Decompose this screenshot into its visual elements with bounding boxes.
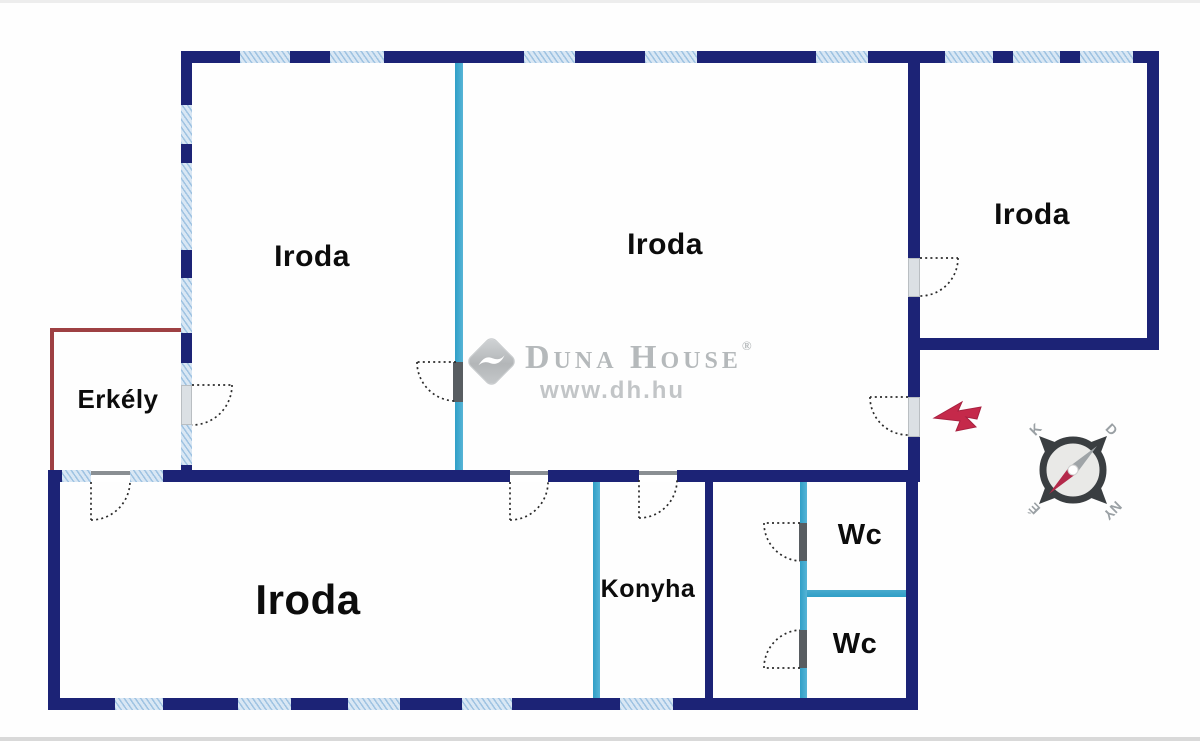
entrance-door-slab: [908, 397, 920, 437]
wall-segment: [908, 51, 920, 397]
bottom-edge-strip: [0, 737, 1200, 741]
room-label-wc-lower: Wc: [805, 628, 905, 661]
door-arc: [510, 482, 548, 520]
window: [181, 105, 192, 144]
window: [816, 51, 868, 63]
window: [645, 51, 697, 63]
dunahouse-brand-text: Duna House®: [525, 338, 752, 377]
door-slab: [908, 258, 920, 297]
window: [130, 470, 163, 482]
balcony-wall: [50, 328, 181, 332]
wall-segment: [181, 144, 192, 163]
wall-segment: [1147, 51, 1159, 350]
window: [1080, 51, 1133, 63]
wall-segment: [1060, 51, 1080, 63]
compass-label-south: D: [1102, 420, 1120, 438]
door-arc: [91, 482, 130, 520]
door-arc: [192, 385, 232, 425]
room-label-iroda-top-left: Iroda: [232, 240, 392, 274]
compass-label-east: K: [1026, 420, 1044, 438]
wall-segment: [548, 470, 639, 482]
room-label-iroda-top-right: Iroda: [952, 198, 1112, 232]
door-arc: [920, 258, 958, 296]
wall-segment: [575, 51, 645, 63]
window: [240, 51, 290, 63]
wall-segment: [181, 51, 192, 105]
wall-segment: [677, 470, 918, 482]
wave-icon: [478, 351, 506, 373]
door-arc: [764, 630, 800, 668]
room-label-iroda-bottom: Iroda: [208, 576, 408, 624]
room-label-wc-upper: Wc: [810, 519, 910, 552]
window: [330, 51, 384, 63]
wall-segment: [906, 470, 918, 710]
compass-rose: K D É NY: [1019, 415, 1129, 525]
wall-segment: [697, 51, 816, 63]
window: [115, 698, 163, 710]
room-label-erkely: Erkély: [48, 384, 188, 415]
door-lintel: [510, 471, 548, 475]
wall-segment: [993, 51, 1013, 63]
wall-segment: [290, 51, 330, 63]
registered-mark: ®: [742, 338, 752, 353]
wall-segment: [181, 250, 192, 278]
window: [238, 698, 291, 710]
wall-segment: [291, 698, 348, 710]
wall-segment: [908, 338, 1159, 350]
wall-segment: [48, 470, 60, 710]
room-label-konyha: Konyha: [588, 575, 708, 604]
room-label-iroda-center: Iroda: [585, 228, 745, 262]
window: [348, 698, 400, 710]
door-slab: [799, 523, 807, 561]
wall-segment: [400, 698, 462, 710]
door-lintel: [639, 471, 677, 475]
door-arc: [764, 523, 800, 561]
window: [524, 51, 575, 63]
wall-segment: [384, 51, 524, 63]
wall-segment: [163, 470, 510, 482]
wall-segment: [48, 698, 115, 710]
window: [1013, 51, 1060, 63]
floorplan-canvas: Iroda Iroda Iroda Iroda Erkély Konyha Wc…: [0, 0, 1200, 741]
brand-name: Duna House: [525, 339, 742, 376]
partition-wall: [807, 590, 906, 597]
window: [620, 698, 673, 710]
dunahouse-url-text: www.dh.hu: [540, 377, 685, 405]
wall-segment: [673, 698, 918, 710]
window: [181, 278, 192, 333]
window: [462, 698, 512, 710]
door-arc: [417, 362, 456, 401]
top-edge-strip: [0, 0, 1200, 3]
window: [181, 163, 192, 250]
door-lintel: [91, 471, 130, 475]
wall-segment: [181, 333, 192, 363]
door-arc: [639, 480, 677, 518]
door-arc: [870, 397, 908, 435]
dunahouse-watermark: Duna House® www.dh.hu: [455, 330, 765, 410]
wall-segment: [512, 698, 620, 710]
compass-pivot: [1068, 465, 1078, 475]
entrance-arrow-icon: [934, 402, 981, 431]
wall-segment: [868, 51, 945, 63]
window: [62, 470, 91, 482]
window: [945, 51, 993, 63]
wall-segment: [163, 698, 238, 710]
dunahouse-logo-icon: [467, 337, 516, 386]
